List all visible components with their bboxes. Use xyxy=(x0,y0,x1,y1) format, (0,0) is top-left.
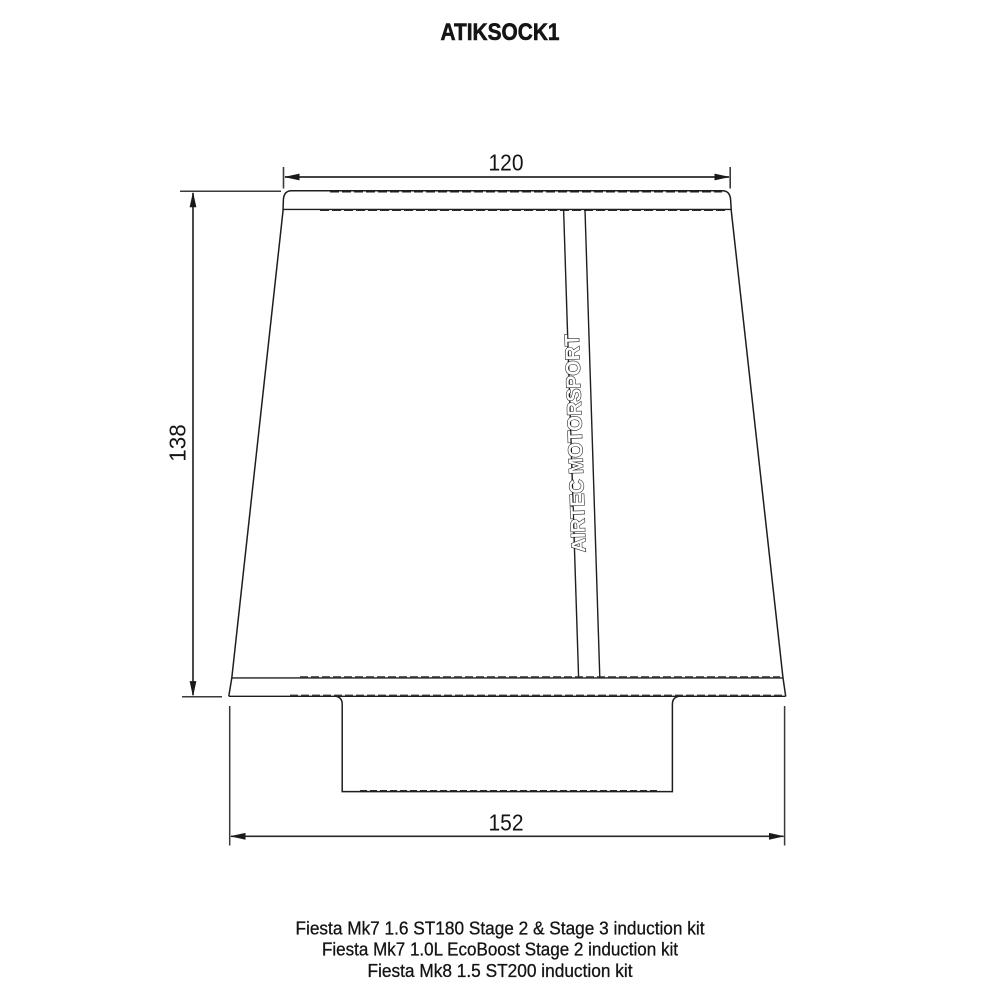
svg-text:Fiesta Mk8 1.5 ST200 induction: Fiesta Mk8 1.5 ST200 induction kit xyxy=(368,960,633,981)
svg-text:120: 120 xyxy=(489,150,524,176)
svg-text:152: 152 xyxy=(489,810,524,836)
svg-text:AIRTEC MOTORSPORT: AIRTEC MOTORSPORT xyxy=(562,334,591,553)
svg-text:Fiesta Mk7 1.6 ST180 Stage 2 &: Fiesta Mk7 1.6 ST180 Stage 2 & Stage 3 i… xyxy=(296,918,705,939)
svg-text:138: 138 xyxy=(165,424,191,462)
svg-text:Fiesta Mk7 1.0L EcoBoost Stage: Fiesta Mk7 1.0L EcoBoost Stage 2 inducti… xyxy=(322,939,678,960)
svg-text:ATIKSOCK1: ATIKSOCK1 xyxy=(441,19,560,46)
